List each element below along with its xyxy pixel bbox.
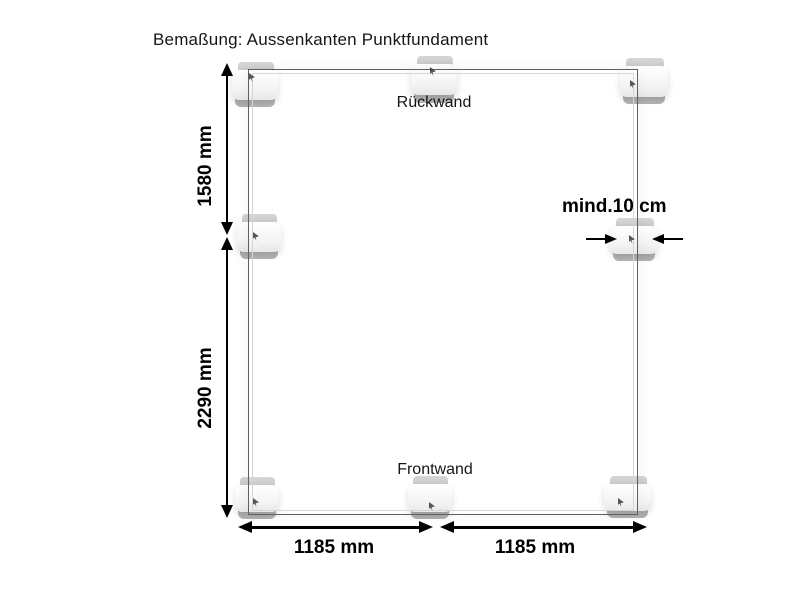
clearance-line	[586, 238, 606, 240]
foundation-outline	[248, 69, 638, 515]
dimension-line	[451, 526, 636, 529]
dimension-line-depth-lower	[221, 237, 233, 518]
front-wall-label: Frontwand	[397, 461, 473, 479]
diagram-title: Bemaßung: Aussenkanten Punktfundament	[153, 30, 488, 50]
dimension-line	[226, 73, 228, 225]
dim-arrow-right-icon	[633, 521, 647, 533]
clearance-line	[663, 238, 683, 240]
clearance-arrow-right	[586, 234, 617, 244]
dimension-line-depth-upper	[221, 63, 233, 235]
clearance-label: mind.10 cm	[562, 196, 667, 218]
dimension-line	[249, 526, 422, 529]
foundation-dimension-diagram: Bemaßung: Aussenkanten Punktfundament	[0, 0, 800, 600]
dimension-label-width-right: 1185 mm	[495, 537, 575, 559]
foundation-outline-inner-edge	[252, 73, 634, 511]
clearance-arrow-left	[652, 234, 683, 244]
dim-arrow-down-icon	[221, 505, 233, 518]
back-wall-label: Rückwand	[397, 94, 472, 112]
dimension-label-depth-lower: 2290 mm	[195, 347, 217, 428]
dimension-line-width-left	[238, 521, 433, 533]
small-arrow-right-icon	[605, 234, 617, 244]
dim-arrow-down-icon	[221, 222, 233, 235]
dim-arrow-right-icon	[419, 521, 433, 533]
dimension-line-width-right	[440, 521, 647, 533]
dimension-label-width-left: 1185 mm	[294, 537, 374, 559]
dimension-label-depth-upper: 1580 mm	[195, 125, 217, 206]
dimension-line	[226, 247, 228, 508]
